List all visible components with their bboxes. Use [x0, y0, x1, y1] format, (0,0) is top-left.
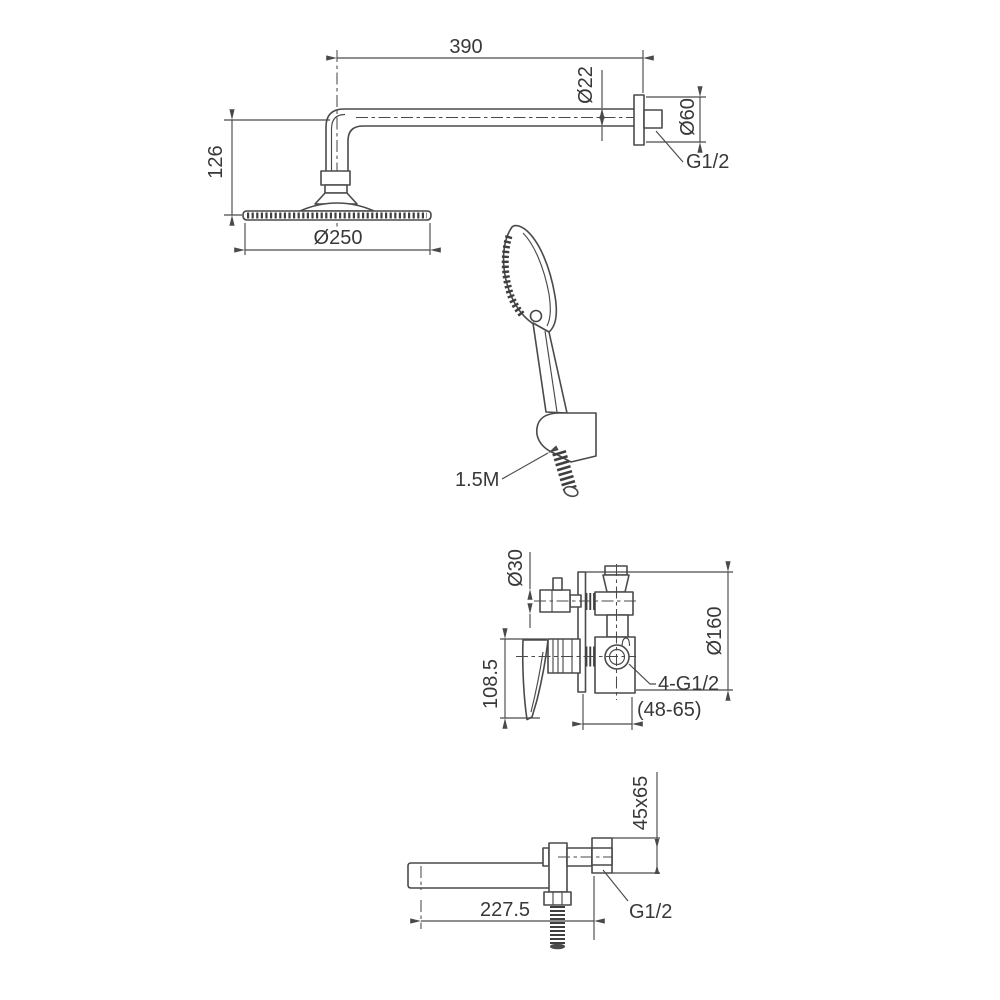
callout-connection-threads-label: 4-G1/2 — [658, 673, 719, 695]
dim-embed-depth: (48-65) — [583, 694, 701, 730]
threaded-rod-end — [550, 944, 565, 950]
dim-bracket-section-label: 45x65 — [630, 776, 652, 831]
dim-head-diameter: Ø250 — [245, 223, 430, 255]
head-hub-dome — [300, 203, 374, 211]
shower-arm — [326, 109, 635, 171]
arm-collar — [325, 185, 347, 193]
dim-arm-diameter: Ø22 — [575, 66, 602, 141]
dim-diverter-diameter: Ø30 — [505, 549, 530, 628]
dim-bracket-section: 45x65 — [612, 772, 660, 874]
spout-drawing: 45x65 227.5 G1/2 — [408, 772, 672, 949]
dim-arm-length: 390 — [337, 36, 643, 93]
dim-escutcheon-diameter-label: Ø60 — [677, 98, 699, 136]
dim-head-drop-label: 126 — [205, 145, 227, 178]
dim-head-drop: 126 — [205, 120, 330, 215]
hose-end — [563, 485, 579, 498]
mixer-valve-drawing: Ø30 Ø160 108.5 4-G1/2 (48-65) — [480, 549, 733, 730]
spray-face-pivot — [531, 311, 542, 322]
diverter-button — [553, 578, 562, 590]
dim-arm-diameter-label: Ø22 — [575, 66, 597, 104]
dim-arm-length-label: 390 — [449, 36, 482, 58]
wall-thread-connector — [644, 110, 662, 128]
mixer-top-body — [595, 592, 633, 615]
dim-handle-length-label: 108.5 — [480, 659, 502, 709]
callout-hose-length: 1.5M — [455, 453, 548, 491]
mounting-nut — [544, 892, 571, 905]
callout-wall-thread-label: G1/2 — [686, 151, 729, 173]
mixer-body-connector — [607, 615, 628, 637]
dim-plate-diameter-label: Ø160 — [704, 607, 726, 656]
mixer-lever-handle — [523, 640, 548, 720]
spout-tab — [543, 848, 549, 866]
overhead-shower-drawing: 390 Ø22 Ø60 G1/2 126 — [205, 36, 729, 255]
shower-arm-inner-line — [332, 115, 346, 172]
dim-diverter-diameter-label: Ø30 — [505, 549, 527, 587]
shower-set-technical-drawing: 390 Ø22 Ø60 G1/2 126 — [0, 0, 1000, 1000]
dim-embed-depth-label: (48-65) — [637, 699, 701, 721]
arm-nut — [321, 171, 350, 185]
spout-bar — [408, 863, 550, 888]
callout-wall-thread: G1/2 — [656, 131, 729, 173]
wall-escutcheon — [634, 95, 644, 145]
technical-drawing-page: 390 Ø22 Ø60 G1/2 126 — [0, 0, 1000, 1000]
dim-head-diameter-label: Ø250 — [314, 227, 363, 249]
hand-shower-drawing: 1.5M — [455, 226, 596, 498]
callout-spout-thread: G1/2 — [603, 870, 672, 923]
callout-hose-length-label: 1.5M — [455, 469, 499, 491]
dim-spout-reach-label: 227.5 — [480, 899, 530, 921]
mixer-wall-plate — [578, 572, 586, 692]
spout-riser — [549, 843, 567, 892]
callout-spout-thread-label: G1/2 — [629, 901, 672, 923]
